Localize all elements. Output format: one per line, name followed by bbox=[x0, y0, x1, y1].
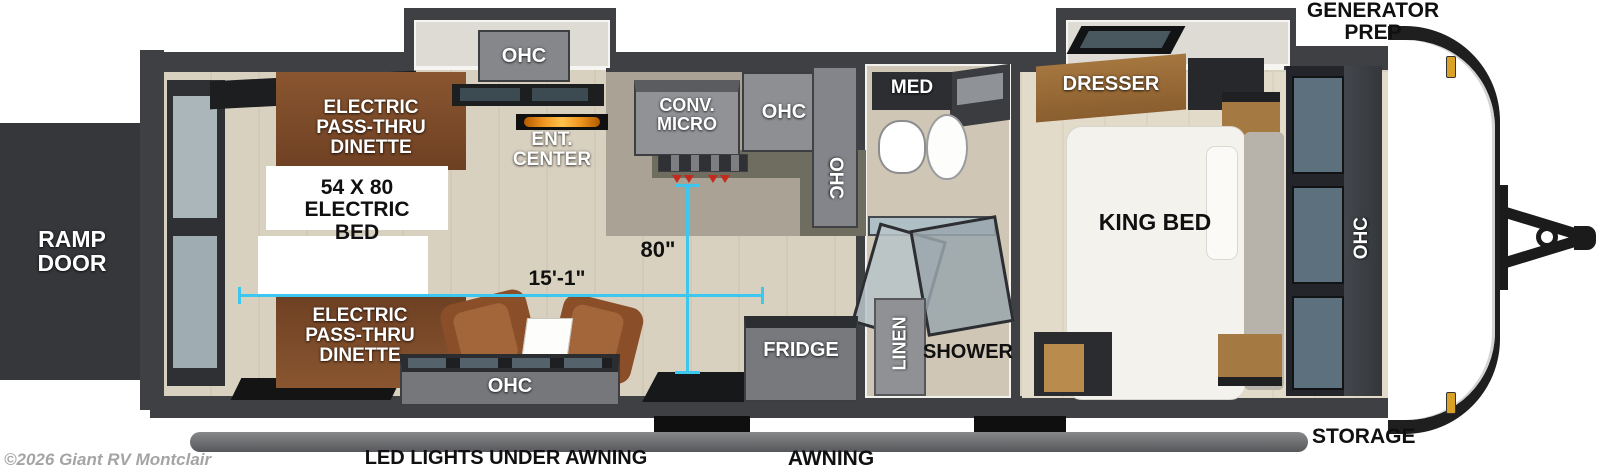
rear-window-pane-bottom bbox=[173, 236, 217, 368]
front-cap bbox=[1388, 40, 1495, 420]
watermark-text: ©2026 Giant RV Montclair bbox=[4, 450, 211, 470]
dinette-rear-label: ELECTRIC PASS-THRU DINETTE bbox=[303, 98, 439, 158]
bedroom-bottom-cabinet-wood-door bbox=[1044, 344, 1084, 392]
bedroom-bottom-cabinet bbox=[1034, 332, 1112, 396]
media-console-glass-right bbox=[532, 88, 588, 101]
electric-bed-box-lower bbox=[258, 236, 428, 294]
bedroom-ohc-glass-3 bbox=[1292, 296, 1344, 390]
bed-width-dim-cap-top bbox=[675, 184, 700, 187]
burner-arrow-3 bbox=[708, 175, 718, 183]
bath-toilet bbox=[926, 114, 968, 180]
bedroom-slideout-window-glass bbox=[1080, 31, 1171, 48]
rear-wall-window-frame bbox=[167, 80, 225, 386]
fireplace-flame bbox=[524, 117, 600, 127]
media-console bbox=[452, 84, 604, 106]
storage-label: STORAGE bbox=[1312, 426, 1472, 448]
bath-corner-cabinet-door bbox=[957, 73, 1003, 105]
ent-center-label: ENT. CENTER bbox=[500, 130, 604, 170]
length-dim-tick-left bbox=[238, 287, 241, 304]
burner-arrow-4 bbox=[720, 175, 730, 183]
fireplace bbox=[516, 114, 608, 130]
ramp-door: RAMP DOOR bbox=[0, 123, 144, 380]
nightstand-bottom bbox=[1218, 334, 1282, 386]
hitch-coupler bbox=[1574, 226, 1596, 250]
marker-light-top bbox=[1446, 56, 1456, 78]
hitch-jack bbox=[1536, 226, 1558, 248]
led-lights-label: LED LIGHTS UNDER AWNING bbox=[326, 448, 686, 469]
dinette-front-label: ELECTRIC PASS-THRU DINETTE bbox=[292, 306, 428, 366]
bedroom-ohc-glass-1 bbox=[1292, 76, 1344, 174]
kitchen-ohc-label: OHC bbox=[742, 102, 826, 123]
dresser-label: DRESSER bbox=[1036, 74, 1186, 95]
ramp-door-label: RAMP DOOR bbox=[24, 227, 120, 276]
wall-top-rear bbox=[150, 52, 414, 72]
burner-arrow-2 bbox=[684, 175, 694, 183]
ent-ohc-label: OHC bbox=[478, 46, 570, 67]
floorplan-canvas: RAMP DOOR ELECTRIC PASS-THRU DINETTE 54 … bbox=[0, 0, 1600, 475]
front-ohc-glass-strip bbox=[408, 358, 612, 368]
bedroom-ohc-label: OHC bbox=[1352, 206, 1372, 270]
fridge-label: FRIDGE bbox=[744, 340, 858, 361]
kitchen-range bbox=[658, 154, 748, 172]
king-bed-label: KING BED bbox=[1080, 210, 1230, 234]
length-dim-tick-right bbox=[761, 287, 764, 304]
electric-bed-label: 54 X 80 ELECTRIC BED bbox=[281, 177, 433, 244]
bedroom-slideout-window bbox=[1067, 26, 1186, 54]
awning-label: AWNING bbox=[761, 448, 901, 470]
shower-label: SHOWER bbox=[920, 342, 1016, 363]
generator-prep-label: GENERATOR PREP bbox=[1293, 0, 1453, 45]
bedroom-ohc-glass-2 bbox=[1292, 186, 1344, 284]
bath-sink bbox=[878, 120, 926, 174]
king-bed-pillow bbox=[1206, 146, 1238, 260]
bed-width-dim-line bbox=[686, 186, 689, 374]
media-console-glass-left bbox=[460, 88, 520, 101]
conv-micro-label: CONV. MICRO bbox=[646, 96, 728, 134]
length-dim-label: 15'-1" bbox=[505, 268, 609, 290]
med-label: MED bbox=[872, 78, 952, 98]
wall-rear bbox=[140, 50, 164, 410]
linen-label: LINEN bbox=[890, 310, 909, 378]
bath-corner-cabinet bbox=[950, 64, 1010, 128]
burner-arrow-1 bbox=[672, 175, 682, 183]
bed-width-dim-cap-bottom bbox=[675, 371, 700, 374]
rear-window-pane-top bbox=[173, 96, 217, 218]
marker-light-bottom bbox=[1446, 392, 1456, 414]
kitchen-end-ohc-label: OHC bbox=[825, 148, 845, 208]
hitch-assembly bbox=[1490, 170, 1600, 305]
bed-width-dim-label: 80" bbox=[628, 238, 688, 261]
front-ohc-label: OHC bbox=[400, 376, 620, 397]
